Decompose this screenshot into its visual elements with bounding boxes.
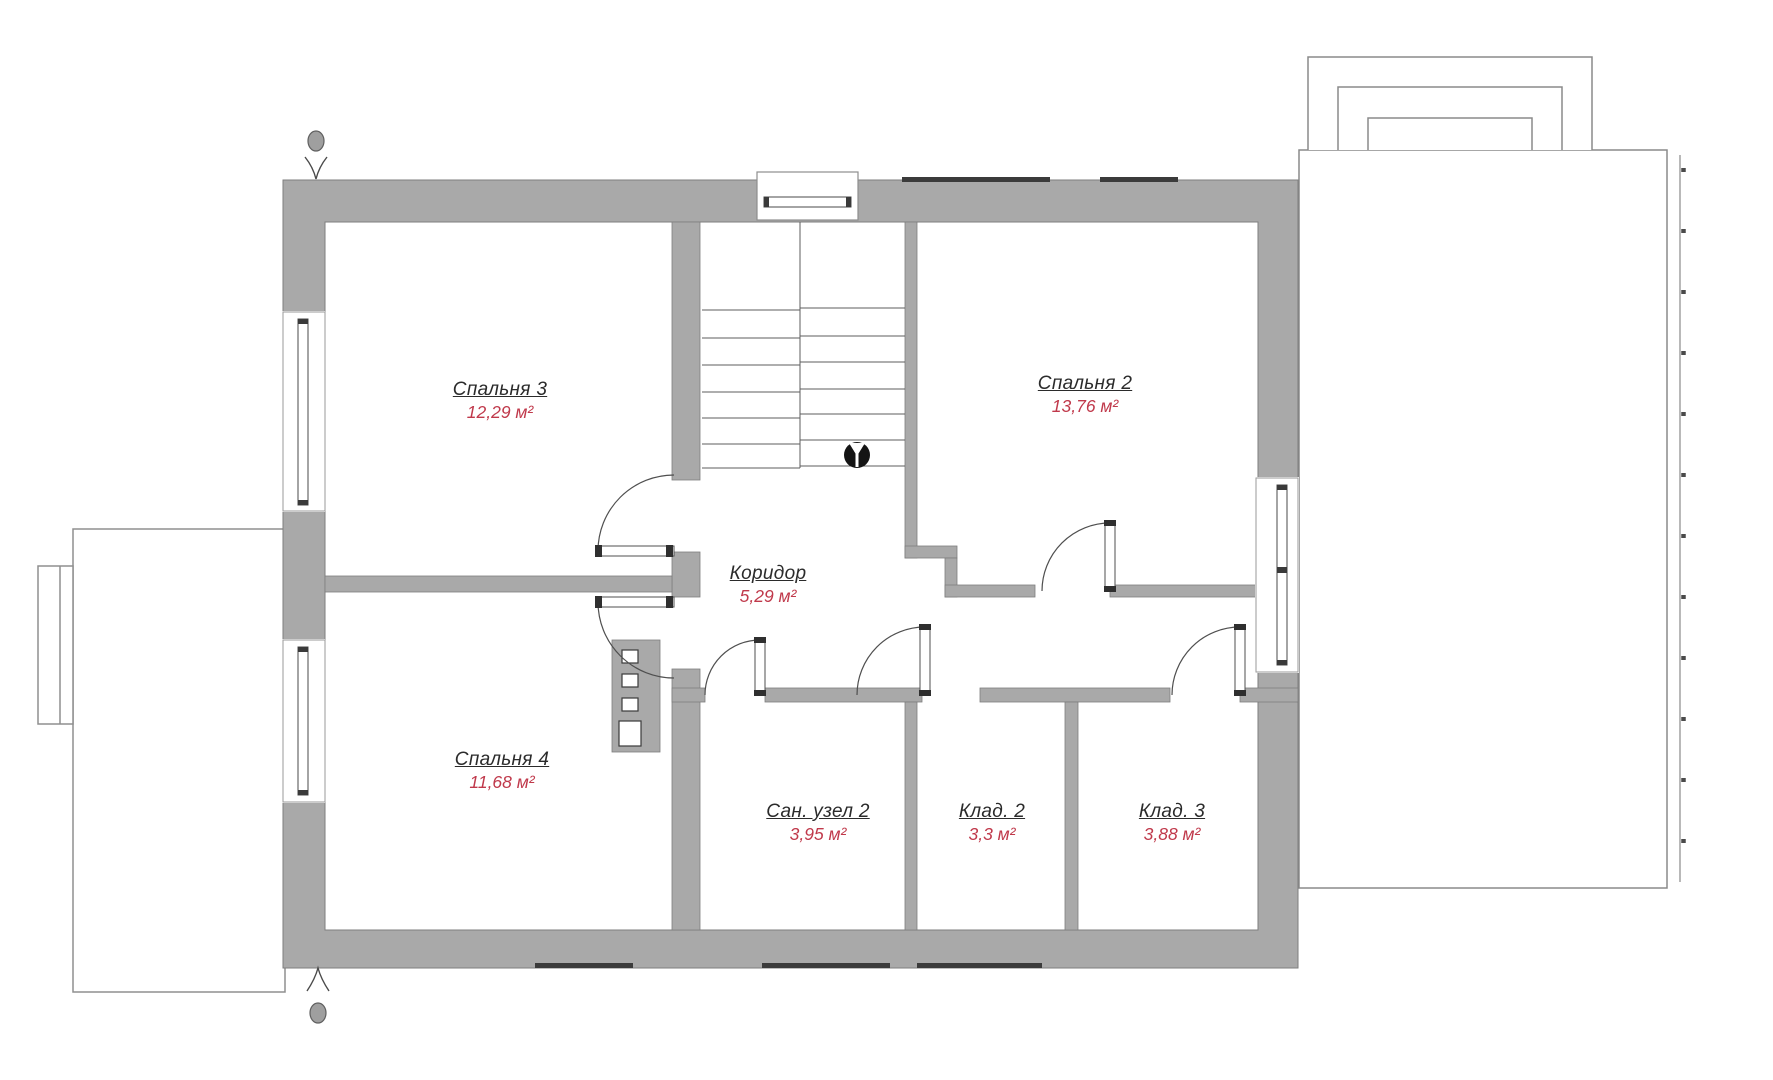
room-area: 12,29 м²	[453, 402, 547, 423]
door-klad-2	[857, 624, 931, 696]
room-area: 13,76 м²	[1038, 396, 1132, 417]
window-right-cap-middle	[1277, 567, 1287, 573]
garage	[1299, 57, 1684, 888]
room-label-san-uzel-2: Сан. узел 2 3,95 м²	[766, 801, 869, 845]
floor-plan-page: Спальня 3 12,29 м² Спальня 2 13,76 м² Ко…	[0, 0, 1773, 1080]
room-area: 3,88 м²	[1139, 824, 1205, 845]
room-label-koridor: Коридор 5,29 м²	[730, 563, 807, 607]
chimney-rect-inner	[1368, 118, 1532, 150]
door-leaf-bedroom-4	[596, 597, 674, 607]
door-plate	[666, 596, 673, 608]
room-area: 11,68 м²	[455, 772, 549, 793]
terrace-outline	[73, 529, 285, 992]
wall-corridor-step-h	[905, 546, 957, 558]
door-arc-san-uzel-2	[705, 640, 760, 695]
axis-marker-top-circle	[308, 131, 324, 151]
room-label-klad-2: Клад. 2 3,3 м²	[959, 801, 1025, 845]
room-name: Клад. 3	[1139, 801, 1205, 822]
axis-marker-bottom-fork	[307, 968, 329, 991]
stair-treads-left	[702, 310, 800, 468]
axis-marker-top-fork	[305, 157, 327, 179]
staircase	[702, 222, 905, 468]
door-bedroom-2	[1042, 520, 1116, 592]
axis-marker-bottom-circle	[310, 1003, 326, 1023]
window-left-1-glazing	[298, 319, 308, 505]
facade-mark-bottom-1	[535, 963, 633, 968]
wall-corridor-bottom-1	[672, 688, 705, 702]
vent-shaft	[612, 640, 660, 752]
room-name: Коридор	[730, 563, 807, 584]
window-right-cap-bottom	[1277, 660, 1287, 665]
wall-stair-right	[905, 222, 917, 558]
room-name: Спальня 4	[455, 749, 549, 770]
door-plate	[666, 545, 673, 557]
room-name: Спальня 3	[453, 379, 547, 400]
terrace-side-step	[38, 566, 73, 724]
window-left-1-cap-top	[298, 319, 308, 324]
vent-duct-4	[619, 721, 641, 746]
stair-treads-right	[800, 308, 905, 466]
door-san-uzel-2	[705, 637, 766, 696]
door-leaf-klad-3	[1235, 625, 1245, 695]
window-top-cap-left	[764, 197, 769, 207]
window-top	[757, 172, 858, 220]
door-plate	[1104, 586, 1116, 592]
window-left-2-glazing	[298, 647, 308, 795]
door-plate	[754, 637, 766, 643]
stair-marker-slit	[856, 443, 859, 467]
window-left-1	[281, 311, 325, 512]
room-area: 5,29 м²	[730, 586, 807, 607]
stair-direction-marker	[844, 442, 870, 468]
facade-mark-bottom-3	[917, 963, 1042, 968]
facade-mark-bottom-2	[762, 963, 890, 968]
door-leaf-klad-2	[920, 625, 930, 695]
door-plate	[1234, 690, 1246, 696]
window-right-glazing	[1277, 485, 1287, 665]
wall-corridor-bottom-2	[765, 688, 922, 702]
terrace	[38, 529, 285, 992]
room-label-spalnya-3: Спальня 3 12,29 м²	[453, 379, 547, 423]
facade-mark-top-2	[1100, 177, 1178, 182]
wall-corridor-bottom-3	[980, 688, 1170, 702]
floor-plan-drawing	[0, 0, 1773, 1080]
vent-duct-3	[622, 698, 638, 711]
room-name: Сан. узел 2	[766, 801, 869, 822]
door-arc-bedroom-3	[598, 475, 674, 551]
door-plate	[919, 624, 931, 630]
window-left-1-cap-bottom	[298, 500, 308, 505]
wall-corridor-left-lower	[672, 669, 700, 930]
wall-bedroom3-bedroom4-divider	[325, 576, 672, 592]
room-area: 3,3 м²	[959, 824, 1025, 845]
vent-duct-2	[622, 674, 638, 687]
wall-sanuzel-klad2-divider	[905, 702, 917, 930]
door-bedroom-3	[595, 475, 674, 557]
room-label-klad-3: Клад. 3 3,88 м²	[1139, 801, 1205, 845]
window-top-cap-right	[846, 197, 851, 207]
wall-corridor-left-upper	[672, 222, 700, 480]
room-name: Клад. 2	[959, 801, 1025, 822]
door-plate	[1104, 520, 1116, 526]
wall-bedroom2-bottom-right	[1110, 585, 1258, 597]
wall-corridor-bottom-4	[1240, 688, 1298, 702]
room-label-spalnya-2: Спальня 2 13,76 м²	[1038, 373, 1132, 417]
door-plate	[919, 690, 931, 696]
door-leaf-san-uzel-2	[755, 638, 765, 695]
door-leaf-bedroom-2	[1105, 521, 1115, 591]
door-arc-bedroom-2	[1042, 523, 1110, 591]
vent-duct-1	[622, 650, 638, 663]
facade-mark-top-1	[902, 177, 1050, 182]
door-arc-klad-2	[857, 627, 925, 695]
door-klad-3	[1172, 624, 1246, 696]
door-plate	[595, 596, 602, 608]
garage-outline	[1299, 150, 1667, 888]
wall-corridor-left-junction	[672, 552, 700, 597]
door-plate	[1234, 624, 1246, 630]
door-arc-klad-3	[1172, 627, 1240, 695]
window-top-frame	[757, 172, 858, 220]
room-area: 3,95 м²	[766, 824, 869, 845]
room-name: Спальня 2	[1038, 373, 1132, 394]
window-left-2-cap-top	[298, 647, 308, 652]
window-left-2-cap-bottom	[298, 790, 308, 795]
window-right-cap-top	[1277, 485, 1287, 490]
door-leaf-bedroom-3	[596, 546, 674, 556]
facade-marks	[535, 177, 1178, 968]
windows	[281, 172, 1299, 803]
window-left-2	[281, 639, 325, 803]
wall-klad2-klad3-divider	[1065, 702, 1078, 930]
door-plate	[754, 690, 766, 696]
window-top-glazing	[764, 197, 851, 207]
wall-bedroom2-bottom-left	[945, 585, 1035, 597]
room-label-spalnya-4: Спальня 4 11,68 м²	[455, 749, 549, 793]
window-right	[1255, 477, 1299, 673]
door-plate	[595, 545, 602, 557]
